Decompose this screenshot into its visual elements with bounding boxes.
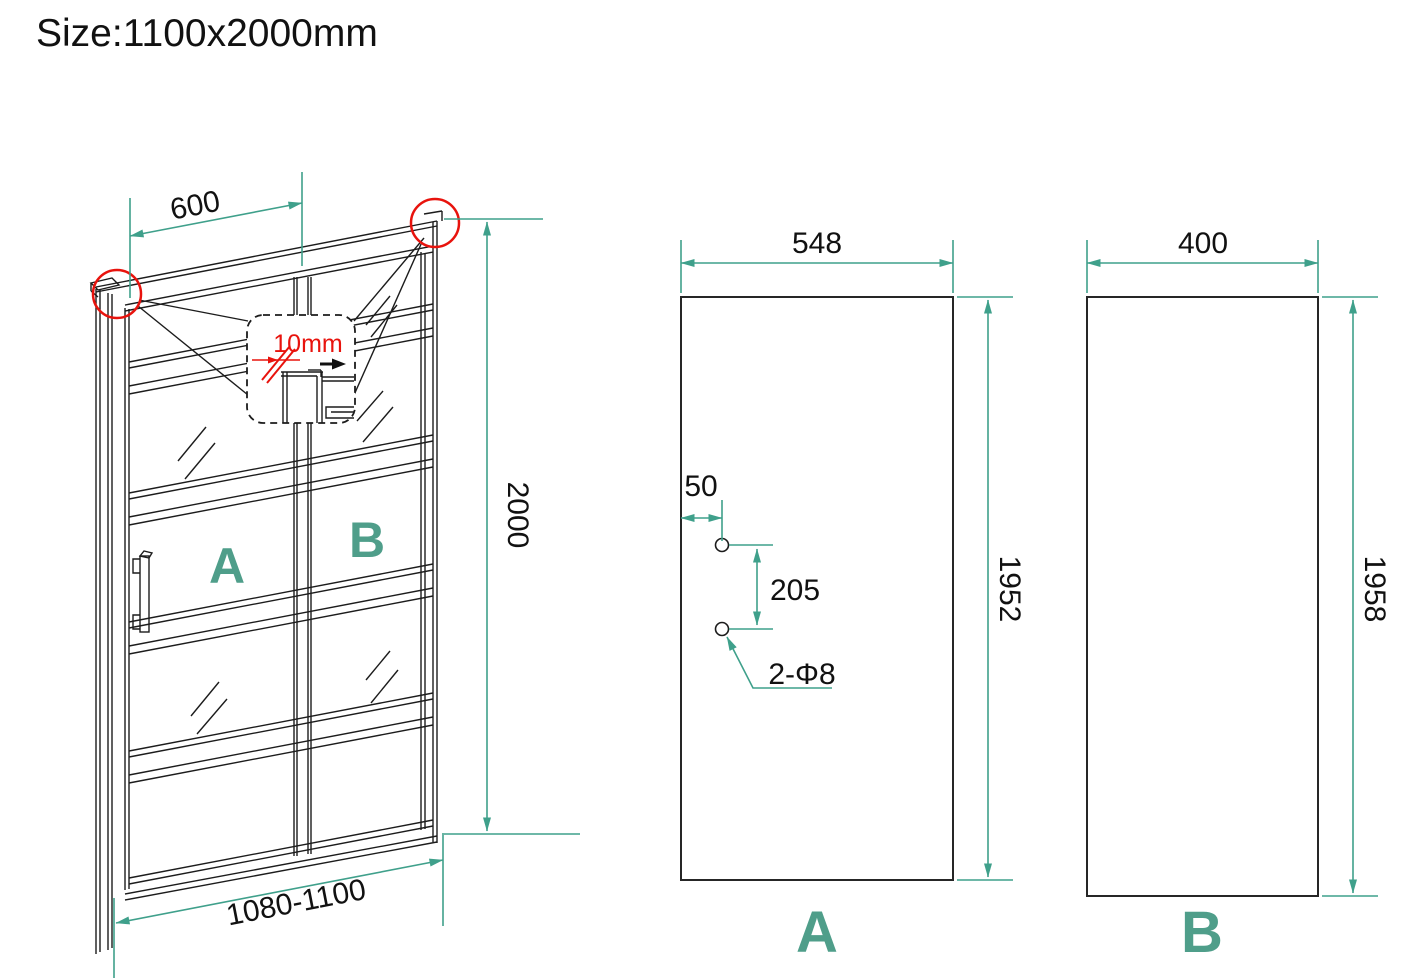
dim-panel-b-width-value: 400 (1178, 227, 1228, 260)
panel-b-drawing: 400 1958 B (1087, 227, 1391, 965)
dim-hole-spacing-value: 205 (770, 574, 820, 607)
dim-panel-b-width: 400 (1087, 227, 1318, 293)
panel-b-outline (1087, 297, 1318, 896)
dim-panel-b-height-value: 1958 (1358, 556, 1391, 623)
door-3d-dimensions: 600 2000 1080-1100 (114, 172, 580, 978)
dim-panel-a-height-value: 1952 (993, 556, 1026, 623)
door-3d-drawing: A B (91, 199, 459, 954)
glass-thickness-detail-callout: 10mm (247, 315, 355, 423)
dim-panel-a-width: 548 (681, 227, 953, 293)
dim-panel-a-height: 1952 (957, 297, 1026, 880)
panel-b-label: B (1181, 900, 1223, 965)
door-panel-a-label: A (209, 538, 245, 594)
technical-drawing-page: Size:1100x2000mm (0, 0, 1402, 978)
dim-panel-a-width-value: 548 (792, 227, 842, 260)
dim-panel-b-height: 1958 (1322, 297, 1391, 896)
top-rail (96, 211, 442, 311)
glass-thickness-label: 10mm (273, 330, 342, 358)
dim-door-height-value: 2000 (501, 482, 534, 549)
holes-callout-value: 2-Φ8 (768, 658, 835, 691)
dim-door-bottom-width: 1080-1100 (114, 833, 443, 978)
panel-a-drawing: 548 1952 50 205 (681, 227, 1026, 965)
dim-door-bottom-width-value: 1080-1100 (224, 873, 369, 932)
dim-hole-inset-value: 50 (684, 470, 717, 503)
door-panel-b-label: B (349, 512, 385, 568)
corner-highlight-circle-right (411, 199, 459, 247)
panel-a-label: A (796, 900, 838, 965)
wall-profile (91, 278, 119, 954)
drawing-canvas: A B (0, 0, 1402, 978)
dim-door-height: 2000 (444, 219, 580, 834)
dim-door-top-width: 600 (130, 172, 302, 298)
